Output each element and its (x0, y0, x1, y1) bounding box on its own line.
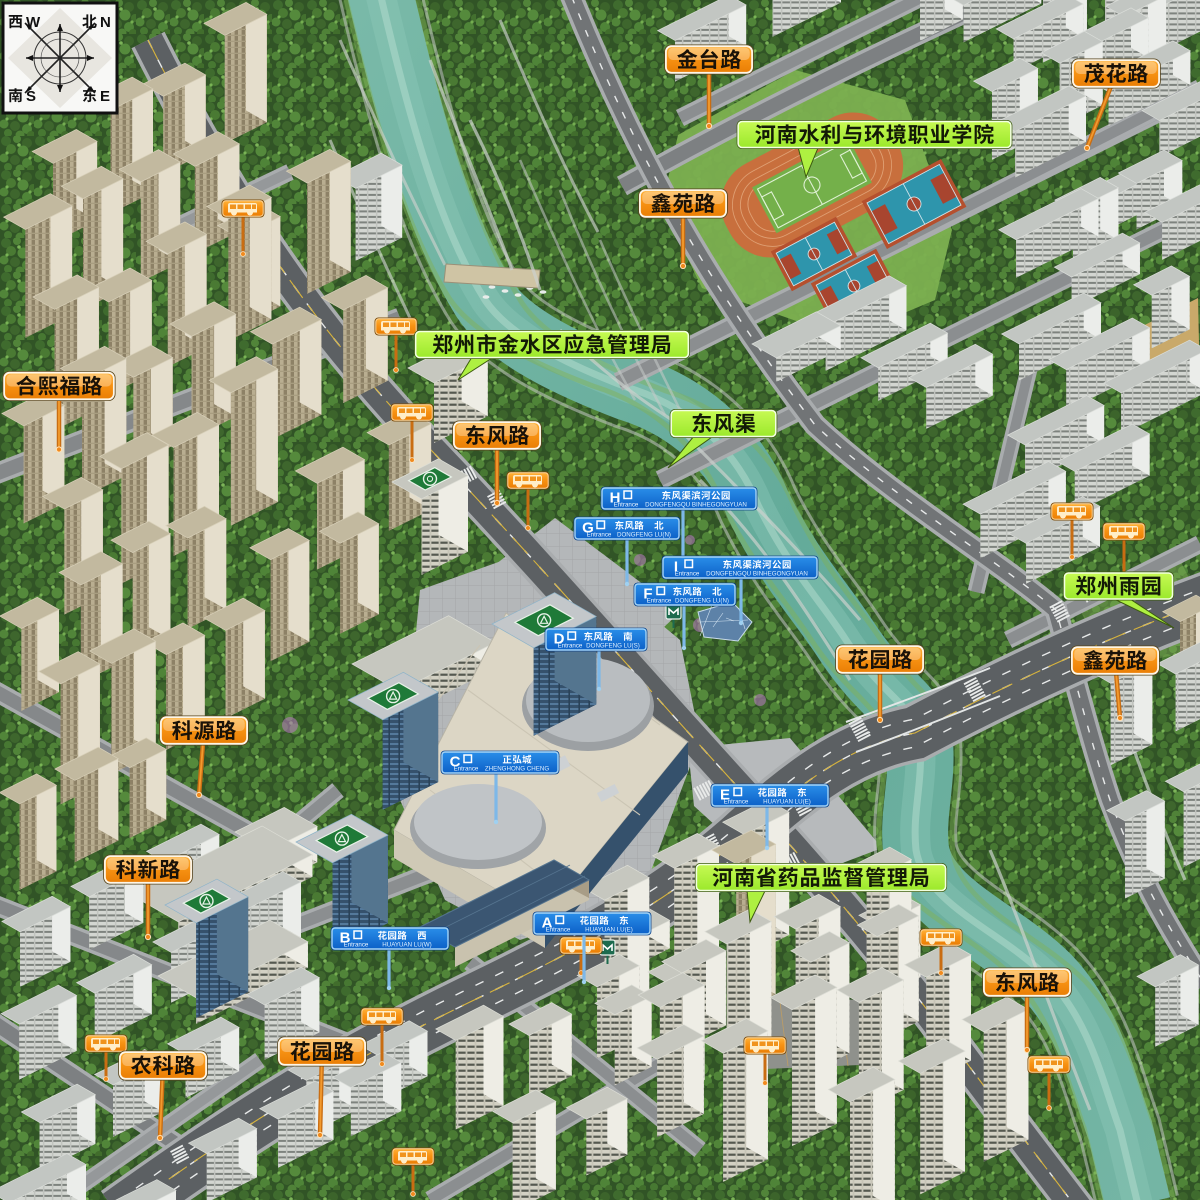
svg-text:Entrance: Entrance (724, 799, 749, 806)
svg-text:DONGFENGQU BINHEGONGYUAN: DONGFENGQU BINHEGONGYUAN (706, 571, 808, 578)
svg-text:DONGFENG LU(N): DONGFENG LU(N) (675, 598, 729, 605)
svg-text:Entrance: Entrance (647, 598, 672, 605)
svg-text:Entrance: Entrance (614, 502, 639, 509)
svg-text:HUAYUAN LU(W): HUAYUAN LU(W) (382, 942, 431, 949)
svg-text:DONGFENG LU(S): DONGFENG LU(S) (586, 643, 640, 650)
svg-text:HUAYUAN LU(E): HUAYUAN LU(E) (763, 799, 811, 806)
svg-text:Entrance: Entrance (587, 532, 612, 539)
svg-text:DONGFENGQU BINHEGONGYUAN: DONGFENGQU BINHEGONGYUAN (645, 502, 747, 509)
svg-text:E: E (100, 88, 110, 105)
svg-text:S: S (26, 88, 36, 105)
svg-text:HUAYUAN LU(E): HUAYUAN LU(E) (585, 927, 633, 934)
svg-text:N: N (100, 14, 111, 31)
svg-text:ZHENGHONG CHENG: ZHENGHONG CHENG (485, 766, 549, 773)
svg-text:DONGFENG LU(N): DONGFENG LU(N) (617, 532, 671, 539)
svg-text:Entrance: Entrance (675, 571, 700, 578)
svg-text:Entrance: Entrance (546, 927, 571, 934)
svg-text:Entrance: Entrance (454, 766, 479, 773)
svg-text:Entrance: Entrance (344, 942, 369, 949)
svg-text:W: W (26, 14, 41, 31)
svg-text:Entrance: Entrance (558, 643, 583, 650)
